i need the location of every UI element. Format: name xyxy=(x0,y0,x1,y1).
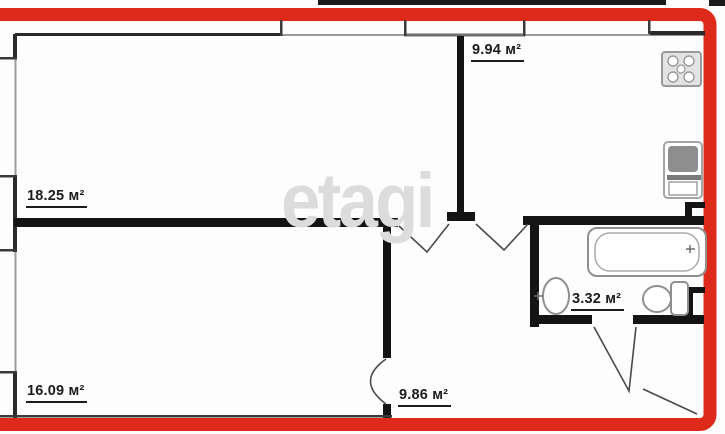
window-jamb xyxy=(404,20,407,36)
kitchen-wall-cap xyxy=(447,212,475,221)
floor-plan: etagi 18.25 м² 9.94 м² 16.09 м² 9.86 м² … xyxy=(0,0,725,434)
bedroom-door-swing xyxy=(371,359,387,404)
window-jamb xyxy=(0,249,17,252)
window-jamb xyxy=(523,20,526,36)
top-exterior-wall xyxy=(15,20,705,37)
window-line xyxy=(525,34,650,36)
window-line xyxy=(404,34,525,37)
kitchen-fixtures xyxy=(662,52,702,198)
window-line xyxy=(281,34,404,36)
window-jamb xyxy=(280,20,283,36)
wall-segment xyxy=(13,34,17,59)
window-jamb xyxy=(0,371,17,374)
top-edge-line-right xyxy=(709,0,725,6)
bathtub-icon xyxy=(588,228,706,276)
hall-left-wall xyxy=(383,227,391,358)
wall-segment xyxy=(13,372,17,418)
wall-segment xyxy=(650,31,705,36)
bottom-inner-wall-line xyxy=(0,415,392,418)
window-jamb xyxy=(0,57,17,60)
etagi-watermark: etagi xyxy=(281,163,433,240)
shaft-wall xyxy=(691,287,705,293)
stove-icon xyxy=(662,52,701,86)
window-jamb xyxy=(0,175,17,178)
toilet-icon xyxy=(643,282,688,315)
bathroom-door-swing xyxy=(594,327,636,391)
photo-edge-artifacts xyxy=(318,0,725,6)
living-room-area-label: 18.25 м² xyxy=(26,189,87,208)
wall-segment xyxy=(13,176,17,252)
window-line xyxy=(15,59,17,176)
kitchen-partition-wall xyxy=(457,36,464,214)
top-edge-line xyxy=(318,0,666,5)
bathroom-top-wall xyxy=(523,216,704,225)
window-line xyxy=(15,252,17,372)
window-jamb xyxy=(648,20,651,34)
hallway-area-label: 9.86 м² xyxy=(398,388,451,407)
kitchen-door-swing xyxy=(476,224,528,250)
kitchen-area-label: 9.94 м² xyxy=(471,43,524,62)
wall-segment xyxy=(15,33,281,36)
washbasin-icon xyxy=(534,278,569,314)
corner-door-swing xyxy=(643,389,697,414)
shaft-wall xyxy=(690,202,705,208)
bathroom-left-wall xyxy=(530,225,539,327)
bathroom-area-label: 3.32 м² xyxy=(571,292,624,311)
bathroom-bottom-wall-left xyxy=(530,315,592,324)
bathroom-bottom-wall-right xyxy=(633,315,704,324)
kitchen-sink-icon xyxy=(664,142,702,198)
bedroom-area-label: 16.09 м² xyxy=(26,384,87,403)
